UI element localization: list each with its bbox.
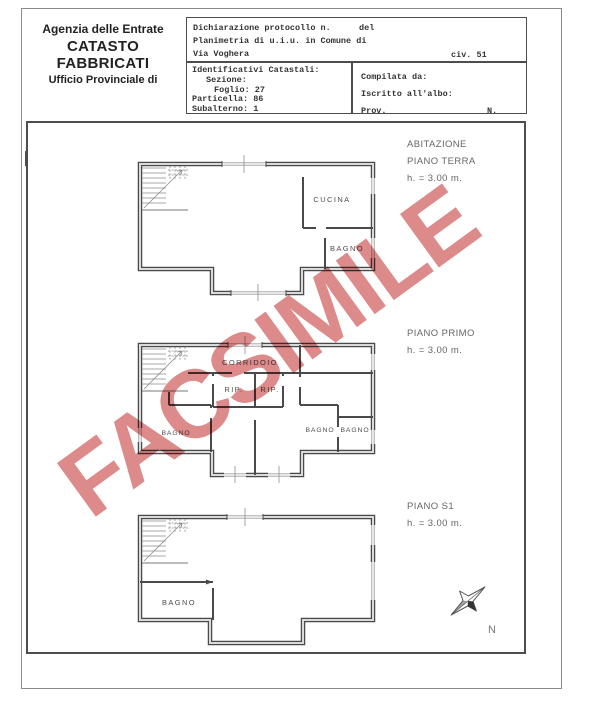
room-label-bagno3: BAGNO — [340, 427, 369, 434]
provincial-office-label: Ufficio Provinciale di — [26, 74, 180, 86]
piano-terra-label: PIANO TERRA — [407, 153, 476, 170]
north-arrow-icon — [451, 587, 485, 615]
piano-s1-height: h. = 3.00 m. — [407, 515, 462, 532]
iscritto-label: Iscritto all'albo: — [361, 86, 518, 103]
del-label: del — [359, 22, 374, 35]
room-label-bagno2: BAGNO — [305, 427, 334, 434]
agency-header: Agenzia delle Entrate CATASTO FABBRICATI… — [26, 22, 180, 86]
staircase — [142, 519, 188, 563]
compiler-box: Compilata da: Iscritto all'albo: Prov. N… — [352, 62, 527, 114]
planimetria-line: Planimetria di u.i.u. in Comune di — [193, 35, 520, 48]
civic-number: civ. 51 — [451, 49, 487, 62]
annotation-piano-primo: PIANO PRIMO h. = 3.00 m. — [407, 325, 475, 359]
cadastral-document-page: { "document": { "agency": { "line1": "Ag… — [0, 0, 600, 714]
declaration-label: Dichiarazione protocollo n. — [193, 23, 331, 33]
north-label: N — [488, 624, 496, 636]
annotation-piano-s1: PIANO S1 h. = 3.00 m. — [407, 498, 462, 532]
piano-primo-height: h. = 3.00 m. — [407, 342, 475, 359]
compilata-label: Compilata da: — [361, 69, 518, 86]
catasto-title: CATASTO FABBRICATI — [26, 38, 180, 72]
abitazione-label: ABITAZIONE — [407, 136, 476, 153]
subalterno-field: Subalterno: 1 — [192, 105, 346, 115]
street-value: Via Voghera — [193, 49, 249, 59]
prov-label: Prov. — [361, 106, 387, 116]
n-label: N. — [487, 103, 497, 120]
address-line: Via Voghera civ. 51 — [193, 48, 520, 61]
staircase — [142, 166, 188, 210]
piano-primo-label: PIANO PRIMO — [407, 325, 475, 342]
compass-rose: N — [444, 581, 506, 643]
room-label-bagno-s1: BAGNO — [162, 598, 196, 607]
piano-s1-label: PIANO S1 — [407, 498, 462, 515]
room-label-cucina: CUCINA — [313, 195, 350, 204]
prov-line: Prov. N. — [361, 103, 518, 120]
window-openings — [227, 508, 376, 600]
plan-piano-s1: BAGNO — [140, 508, 376, 643]
cadastral-ids-box: Identificativi Catastali: Sezione: Fogli… — [186, 62, 352, 114]
protocol-box: Dichiarazione protocollo n. del Planimet… — [186, 17, 527, 62]
agency-name: Agenzia delle Entrate — [26, 22, 180, 36]
protocol-line1: Dichiarazione protocollo n. del — [193, 22, 520, 35]
